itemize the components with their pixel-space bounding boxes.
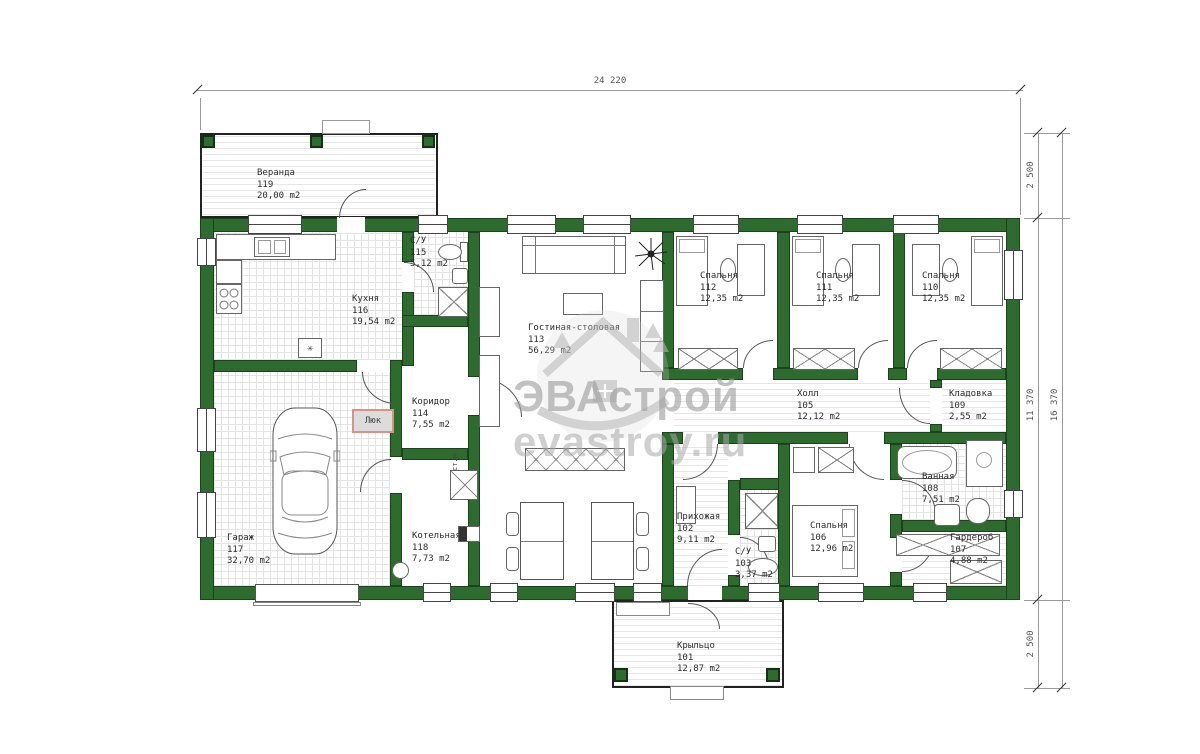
dim-total-depth: 16 370 bbox=[1050, 380, 1060, 430]
chair bbox=[506, 547, 519, 571]
porch-post bbox=[766, 668, 780, 682]
extension-line bbox=[1024, 218, 1070, 219]
pillow bbox=[679, 239, 705, 253]
kitchen-cabinet bbox=[216, 260, 242, 284]
chair bbox=[636, 512, 649, 536]
wall bbox=[890, 572, 902, 586]
chair bbox=[506, 512, 519, 536]
toilet-icon bbox=[966, 498, 990, 524]
door-arc bbox=[907, 340, 937, 368]
veranda-post bbox=[310, 135, 323, 148]
window bbox=[197, 492, 216, 538]
extension-line bbox=[1024, 688, 1070, 689]
window bbox=[490, 583, 518, 602]
tv-unit bbox=[640, 280, 664, 372]
window bbox=[818, 583, 864, 602]
room-label-bedroom112: Спальня11212,35 m2 bbox=[700, 271, 743, 306]
washbasin-icon bbox=[452, 268, 468, 284]
room-label-bedroom106: Спальня10612,96 m2 bbox=[810, 521, 853, 556]
wall bbox=[662, 432, 683, 444]
shower-icon bbox=[438, 287, 468, 317]
pillow bbox=[795, 239, 821, 253]
window bbox=[197, 408, 216, 452]
room-label-entry: Прихожая1029,11 m2 bbox=[677, 512, 720, 547]
door-arc bbox=[849, 444, 884, 480]
boiler-icon bbox=[458, 526, 480, 542]
stove bbox=[216, 284, 242, 314]
dimension-line bbox=[1062, 133, 1063, 688]
room-label-living: Гостиная-столовая11356,29 m2 bbox=[528, 323, 620, 358]
washing-machine-label: ст.м bbox=[451, 441, 459, 471]
room-label-wc2: С/У1033,37 m2 bbox=[735, 547, 773, 582]
wall bbox=[778, 444, 790, 586]
window bbox=[423, 583, 451, 602]
shelf-unit bbox=[479, 287, 500, 337]
wardrobe-cabinet bbox=[793, 348, 855, 370]
sink-bowl bbox=[274, 240, 286, 254]
wall bbox=[728, 480, 740, 535]
room-label-bedroom110: Спальня11012,35 m2 bbox=[922, 271, 965, 306]
extension-line bbox=[1024, 133, 1070, 134]
dimension-line bbox=[197, 90, 1023, 91]
room-label-garage: Гараж11732,70 m2 bbox=[227, 533, 270, 568]
door-arc bbox=[743, 340, 773, 368]
dim-total-width: 24 220 bbox=[575, 76, 645, 86]
wardrobe-cabinet bbox=[940, 348, 1002, 370]
room-label-kitchen: Кухня11619,54 m2 bbox=[352, 294, 395, 329]
room-label-veranda: Веранда11920,00 m2 bbox=[257, 168, 300, 203]
window bbox=[583, 215, 631, 234]
room-label-bedroom111: Спальня11112,35 m2 bbox=[816, 271, 859, 306]
window bbox=[575, 583, 615, 602]
wall bbox=[468, 415, 480, 586]
window bbox=[913, 583, 947, 602]
entry-door-opening bbox=[688, 586, 722, 600]
washing-machine-icon bbox=[450, 470, 478, 500]
room-label-bath: Ванная1087,51 m2 bbox=[922, 472, 960, 507]
window bbox=[418, 215, 448, 234]
shower-icon bbox=[745, 493, 778, 529]
door-opening bbox=[337, 217, 365, 233]
sink-bowl bbox=[258, 240, 271, 254]
veranda-canopy bbox=[322, 120, 370, 134]
extension-line bbox=[200, 98, 201, 130]
window bbox=[893, 215, 939, 234]
room-label-hall: Холл10512,12 m2 bbox=[797, 389, 840, 424]
wardrobe-cabinet bbox=[678, 348, 738, 370]
floor-plan: ✳ Люк ст.м bbox=[0, 0, 1200, 754]
wall bbox=[214, 360, 357, 372]
porch-step bbox=[670, 686, 724, 700]
room-label-storage: Кладовка1092,55 m2 bbox=[949, 389, 992, 424]
extension-line bbox=[1024, 600, 1070, 601]
cabinet-row bbox=[525, 448, 625, 471]
window bbox=[507, 215, 556, 234]
porch-mat bbox=[616, 602, 670, 616]
extension-line bbox=[1020, 98, 1021, 215]
pump-icon bbox=[392, 562, 409, 579]
veranda-post bbox=[202, 135, 215, 148]
room-label-wardrobe: Гардероб1074,88 m2 bbox=[950, 533, 993, 568]
hatch-label: Люк bbox=[352, 409, 394, 433]
dresser bbox=[793, 447, 815, 473]
window bbox=[633, 583, 662, 602]
room-label-corridor: Коридор1147,55 m2 bbox=[412, 397, 450, 432]
wall bbox=[930, 380, 942, 388]
wardrobe-cabinet bbox=[818, 447, 854, 473]
floor-drain: ✳ bbox=[298, 338, 322, 358]
shelf-unit bbox=[479, 355, 500, 427]
plant-icon bbox=[633, 236, 669, 276]
wall bbox=[402, 292, 414, 366]
dining-table bbox=[520, 502, 564, 580]
window bbox=[748, 583, 780, 602]
porch-post bbox=[614, 668, 628, 682]
stove-burners bbox=[217, 285, 241, 313]
wall bbox=[888, 368, 907, 380]
room-label-boiler: Котельная1187,73 m2 bbox=[412, 531, 461, 566]
room-label-porch: Крыльцо10112,87 m2 bbox=[677, 641, 720, 676]
window bbox=[797, 215, 843, 234]
wall bbox=[893, 232, 905, 368]
window bbox=[1004, 250, 1023, 300]
wall bbox=[662, 444, 674, 586]
sofa bbox=[522, 236, 626, 274]
pedestal-sink-icon bbox=[934, 504, 960, 526]
wall bbox=[930, 424, 942, 432]
window bbox=[248, 215, 302, 234]
dining-table bbox=[591, 502, 634, 580]
garage-door bbox=[255, 584, 359, 602]
veranda-post bbox=[422, 135, 435, 148]
wall bbox=[718, 432, 848, 444]
garage-door-sill bbox=[253, 602, 361, 606]
window bbox=[197, 238, 216, 266]
dim-porch-depth: 2 500 bbox=[1026, 619, 1036, 669]
room-label-wc1: С/У1155,12 m2 bbox=[410, 236, 448, 271]
basin-bowl bbox=[976, 452, 992, 468]
dim-veranda-depth: 2 500 bbox=[1026, 150, 1036, 200]
chair bbox=[636, 547, 649, 571]
coffee-table bbox=[563, 293, 603, 315]
pillow bbox=[974, 239, 1000, 253]
dim-house-depth: 11 370 bbox=[1026, 380, 1036, 430]
window bbox=[1004, 490, 1023, 518]
window bbox=[693, 215, 739, 234]
wall bbox=[777, 232, 790, 368]
car-icon bbox=[270, 405, 340, 561]
door-arc bbox=[858, 340, 888, 368]
